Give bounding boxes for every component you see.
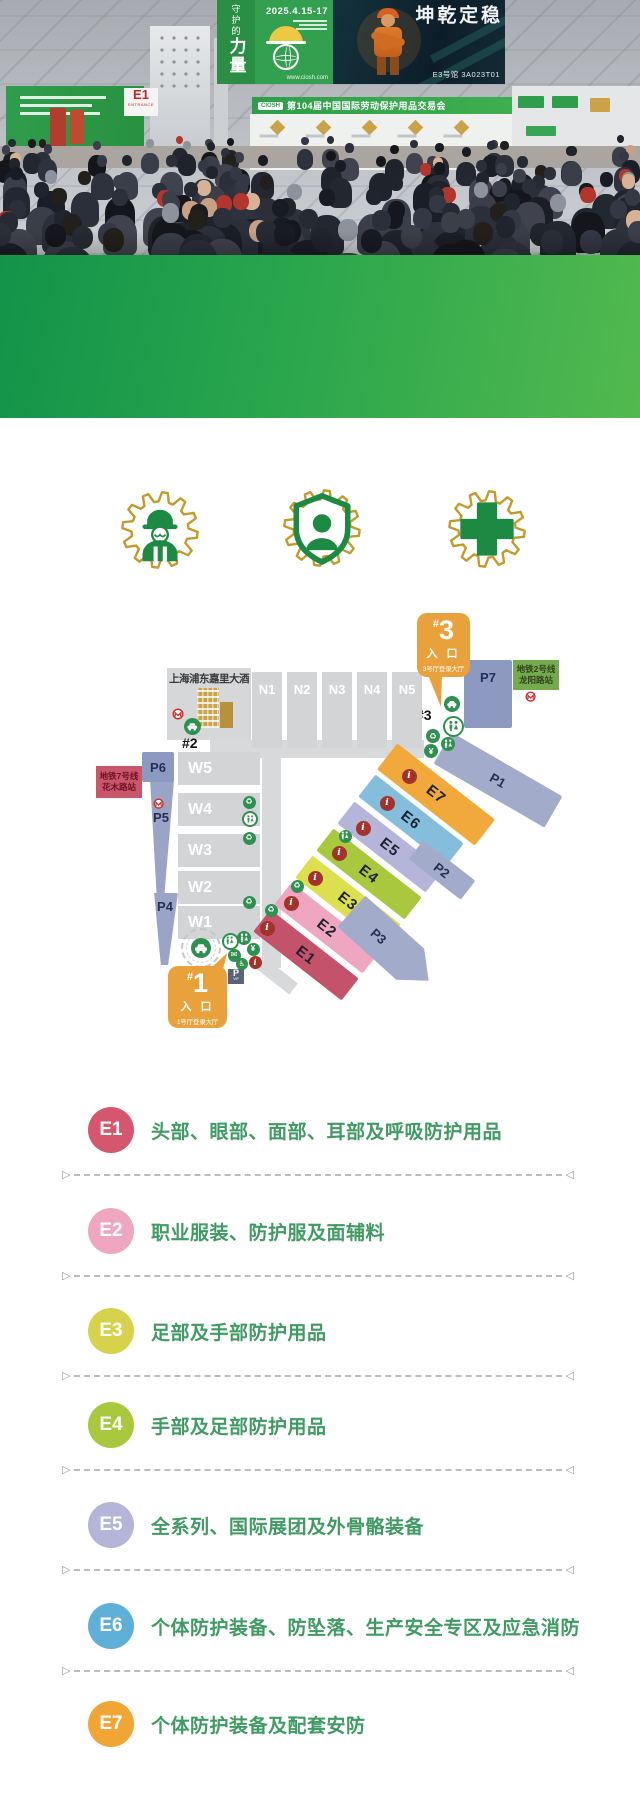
- divider-arrow-right: ◁: [566, 1170, 574, 1181]
- hall-description: 手部及足部防护用品: [151, 1412, 327, 1439]
- legend-divider: ▷◁: [62, 1563, 574, 1577]
- divider-arrow-left: ▷: [62, 1371, 70, 1382]
- hall-description: 个体防护装备及配套安防: [151, 1711, 366, 1738]
- entrance-number: #1: [168, 970, 227, 997]
- divider-arrow-left: ▷: [62, 1271, 70, 1282]
- legend-row-E3: E3足部及手部防护用品: [88, 1308, 620, 1354]
- entrance-number: #3: [417, 617, 470, 644]
- divider-line: [74, 1569, 561, 1571]
- legend-row-E2: E2职业服装、防护服及面辅料: [88, 1208, 620, 1254]
- hall-description: 头部、眼部、面部、耳部及呼吸防护用品: [151, 1117, 502, 1144]
- hall-legend: E1头部、眼部、面部、耳部及呼吸防护用品▷◁E2职业服装、防护服及面辅料▷◁E3…: [0, 0, 640, 1812]
- legend-row-E4: E4手部及足部防护用品: [88, 1402, 620, 1448]
- legend-divider: ▷◁: [62, 1168, 574, 1182]
- legend-row-E1: E1头部、眼部、面部、耳部及呼吸防护用品: [88, 1107, 620, 1153]
- divider-arrow-left: ▷: [62, 1565, 70, 1576]
- legend-divider: ▷◁: [62, 1463, 574, 1477]
- divider-arrow-left: ▷: [62, 1666, 70, 1677]
- divider-arrow-right: ◁: [566, 1271, 574, 1282]
- legend-row-E7: E7个体防护装备及配套安防: [88, 1701, 620, 1747]
- page: 守护的 力量 2025.4.15-17 www.ciosh.com: [0, 0, 640, 1812]
- hall-code-badge: E1: [88, 1107, 134, 1153]
- divider-arrow-right: ◁: [566, 1565, 574, 1576]
- hall-description: 全系列、国际展团及外骨骼装备: [151, 1512, 424, 1539]
- hall-description: 个体防护装备、防坠落、生产安全专区及应急消防: [151, 1613, 580, 1640]
- hall-code-badge: E3: [88, 1308, 134, 1354]
- legend-divider: ▷◁: [62, 1369, 574, 1383]
- hall-code-badge: E2: [88, 1208, 134, 1254]
- divider-arrow-left: ▷: [62, 1170, 70, 1181]
- divider-line: [74, 1275, 561, 1277]
- divider-line: [74, 1469, 561, 1471]
- hall-code-badge: E6: [88, 1603, 134, 1649]
- entrance-subtitle: 1号厅登录大厅: [168, 1016, 227, 1026]
- hall-description: 职业服装、防护服及面辅料: [151, 1218, 385, 1245]
- legend-row-E6: E6个体防护装备、防坠落、生产安全专区及应急消防: [88, 1603, 620, 1649]
- hall-code-badge: E4: [88, 1402, 134, 1448]
- legend-row-E5: E5全系列、国际展团及外骨骼装备: [88, 1502, 620, 1548]
- divider-arrow-right: ◁: [566, 1666, 574, 1677]
- hall-description: 足部及手部防护用品: [151, 1318, 327, 1345]
- divider-arrow-left: ▷: [62, 1465, 70, 1476]
- entrance-3-callout: #3 入 口 3号厅登录大厅: [417, 613, 470, 677]
- entrance-subtitle: 3号厅登录大厅: [417, 663, 470, 673]
- hall-code-badge: E7: [88, 1701, 134, 1747]
- entrance-1-callout: #1 入 口 1号厅登录大厅: [168, 966, 227, 1028]
- divider-arrow-right: ◁: [566, 1371, 574, 1382]
- entrance-title: 入 口: [168, 998, 227, 1014]
- divider-line: [74, 1670, 561, 1672]
- divider-line: [74, 1375, 561, 1377]
- hall-code-badge: E5: [88, 1502, 134, 1548]
- divider-line: [74, 1174, 561, 1176]
- legend-divider: ▷◁: [62, 1664, 574, 1678]
- divider-arrow-right: ◁: [566, 1465, 574, 1476]
- entrance-title: 入 口: [417, 645, 470, 661]
- legend-divider: ▷◁: [62, 1269, 574, 1283]
